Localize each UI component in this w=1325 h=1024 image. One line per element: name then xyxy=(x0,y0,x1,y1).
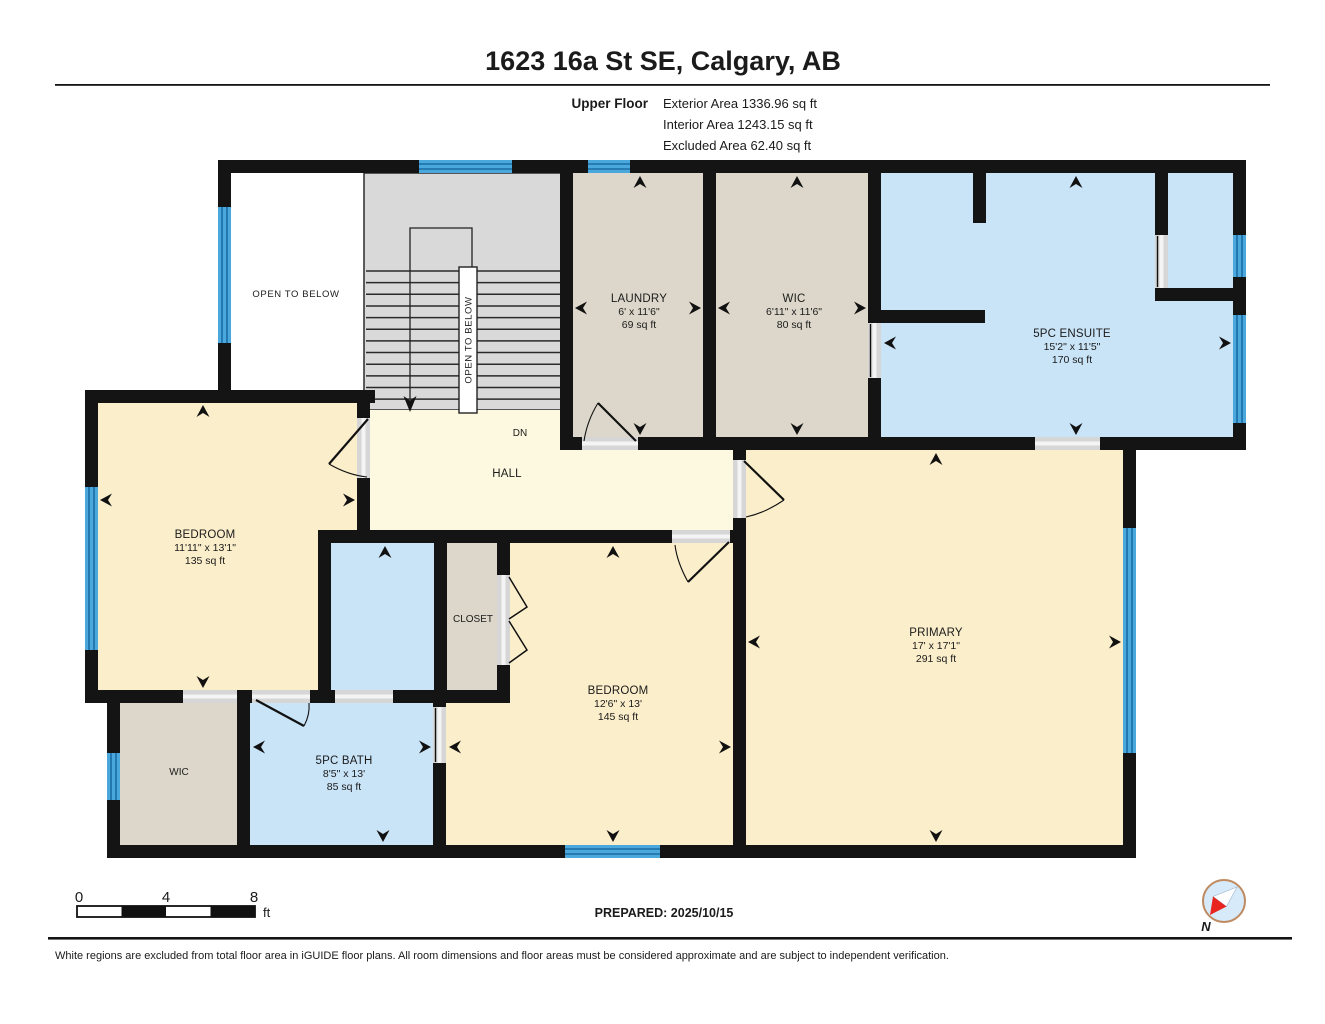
label-bedroom-middle-area: 145 sq ft xyxy=(598,711,638,723)
window-icon xyxy=(1123,528,1136,753)
footer-divider xyxy=(48,937,1292,940)
label-bedroom-left-area: 135 sq ft xyxy=(185,555,225,567)
wall xyxy=(868,378,881,450)
floorplan-page: 1623 16a St SE, Calgary, AB Upper Floor … xyxy=(0,0,1325,1024)
wall xyxy=(660,845,1136,858)
scale-bar-seg2 xyxy=(211,906,256,917)
window-icon xyxy=(85,487,98,650)
room-hall-left xyxy=(370,410,562,530)
window-icon xyxy=(419,160,512,173)
stair-open-label: OPEN TO BELOW xyxy=(464,296,475,383)
label-ensuite: 5PC ENSUITE xyxy=(1033,328,1111,340)
label-bath: 5PC BATH xyxy=(316,755,373,767)
wall xyxy=(1100,437,1246,450)
room-bath-upper xyxy=(331,543,434,690)
label-bedroom-left-dims: 11'11" x 13'1" xyxy=(174,542,236,554)
room-hall-right xyxy=(562,450,733,530)
label-wic-upper-dims: 6'11" x 11'6" xyxy=(766,306,822,318)
door-jamb-inner xyxy=(738,460,742,518)
wall xyxy=(107,800,120,858)
label-primary: PRIMARY xyxy=(909,627,963,639)
wall xyxy=(357,403,370,418)
window-icon xyxy=(588,160,630,173)
compass: N xyxy=(1201,880,1245,934)
wall xyxy=(1123,753,1136,858)
wall xyxy=(433,763,446,858)
label-primary-area: 291 sq ft xyxy=(916,653,956,665)
wall xyxy=(560,160,573,450)
room-laundry xyxy=(573,173,703,437)
room-open-to-below xyxy=(231,173,362,390)
wall xyxy=(733,518,746,858)
wall xyxy=(85,390,98,487)
label-hall: HALL xyxy=(492,468,522,480)
wall xyxy=(497,665,510,703)
label-laundry: LAUNDRY xyxy=(611,293,667,305)
door-jamb-inner xyxy=(672,535,730,539)
label-bedroom-middle: BEDROOM xyxy=(588,685,649,697)
door-jamb-inner xyxy=(252,695,310,699)
wall xyxy=(85,650,98,703)
door-jamb-inner xyxy=(582,442,638,446)
door-jamb-inner xyxy=(1035,442,1100,446)
wall xyxy=(107,845,565,858)
label-wic-lower: WIC xyxy=(169,767,188,778)
label-bedroom-left: BEDROOM xyxy=(175,529,236,541)
wall xyxy=(868,173,881,323)
wall xyxy=(638,437,1035,450)
window-icon xyxy=(107,753,120,800)
label-ensuite-area: 170 sq ft xyxy=(1052,354,1092,366)
label-wic-upper: WIC xyxy=(783,293,806,305)
wall xyxy=(1233,423,1246,450)
label-laundry-dims: 6' x 11'6" xyxy=(618,306,660,318)
label-closet: CLOSET xyxy=(453,614,493,625)
wall xyxy=(703,173,716,450)
floor-label: Upper Floor xyxy=(572,96,649,111)
wall xyxy=(318,530,672,543)
compass-north-label: N xyxy=(1201,919,1211,934)
exterior-area: Exterior Area 1336.96 sq ft xyxy=(663,96,817,111)
wall xyxy=(1155,173,1168,235)
scale-tick-4: 4 xyxy=(162,889,170,906)
wall xyxy=(393,690,510,703)
wall xyxy=(218,160,1246,173)
wall xyxy=(357,478,370,543)
room-ensuite xyxy=(881,173,1233,437)
wall xyxy=(434,530,447,703)
door-jamb-inner xyxy=(502,575,506,665)
label-primary-dims: 17' x 17'1" xyxy=(912,640,960,652)
wall xyxy=(318,530,331,703)
label-laundry-area: 69 sq ft xyxy=(622,319,657,331)
door-jamb-inner xyxy=(873,323,877,378)
wall xyxy=(497,530,510,575)
wall xyxy=(1123,437,1136,528)
room-fills xyxy=(98,173,1233,845)
label-open-to-below: OPEN TO BELOW xyxy=(252,289,339,300)
label-wic-upper-area: 80 sq ft xyxy=(777,319,812,331)
footer: 0 4 8 ft PREPARED: 2025/10/15 N White re… xyxy=(48,880,1292,962)
wall xyxy=(1233,160,1246,235)
room-bedroom-left-upper xyxy=(98,403,357,543)
wall xyxy=(85,690,183,703)
wall xyxy=(881,310,985,323)
window-icon xyxy=(565,845,660,858)
room-bedroom-middle-ext xyxy=(446,703,510,845)
label-dn: DN xyxy=(513,428,527,439)
header: 1623 16a St SE, Calgary, AB Upper Floor … xyxy=(55,46,1270,153)
door-jamb-inner xyxy=(438,707,442,763)
wall xyxy=(973,173,986,223)
wall xyxy=(237,690,250,858)
excluded-area: Excluded Area 62.40 sq ft xyxy=(663,138,812,153)
wall xyxy=(433,690,446,707)
door-jamb-inner xyxy=(1160,235,1164,288)
wall xyxy=(218,343,231,403)
header-divider xyxy=(55,84,1270,86)
disclaimer-text: White regions are excluded from total fl… xyxy=(55,950,949,962)
label-bedroom-middle-dims: 12'6" x 13' xyxy=(594,698,642,710)
door-jamb-inner xyxy=(335,695,393,699)
window-icon xyxy=(1233,235,1246,277)
window-icon xyxy=(218,207,231,343)
room-wic-upper xyxy=(716,173,868,437)
floorplan-canvas: 1623 16a St SE, Calgary, AB Upper Floor … xyxy=(0,0,1325,1024)
interior-area: Interior Area 1243.15 sq ft xyxy=(663,117,813,132)
wall xyxy=(733,450,746,460)
label-bath-dims: 8'5" x 13' xyxy=(323,768,365,780)
wall xyxy=(1233,277,1246,315)
scale-bar-seg1 xyxy=(122,906,167,917)
label-bath-area: 85 sq ft xyxy=(327,781,362,793)
scale-tick-8: 8 xyxy=(250,889,258,906)
window-icon xyxy=(1233,315,1246,423)
wall xyxy=(107,690,120,753)
wall xyxy=(1155,288,1233,301)
scale-tick-0: 0 xyxy=(75,889,83,906)
prepared-date: PREPARED: 2025/10/15 xyxy=(595,906,734,920)
label-ensuite-dims: 15'2" x 11'5" xyxy=(1044,341,1101,353)
door-jamb-inner xyxy=(183,695,237,699)
page-title: 1623 16a St SE, Calgary, AB xyxy=(485,46,841,76)
scale-unit: ft xyxy=(263,905,271,920)
wall xyxy=(218,160,231,207)
